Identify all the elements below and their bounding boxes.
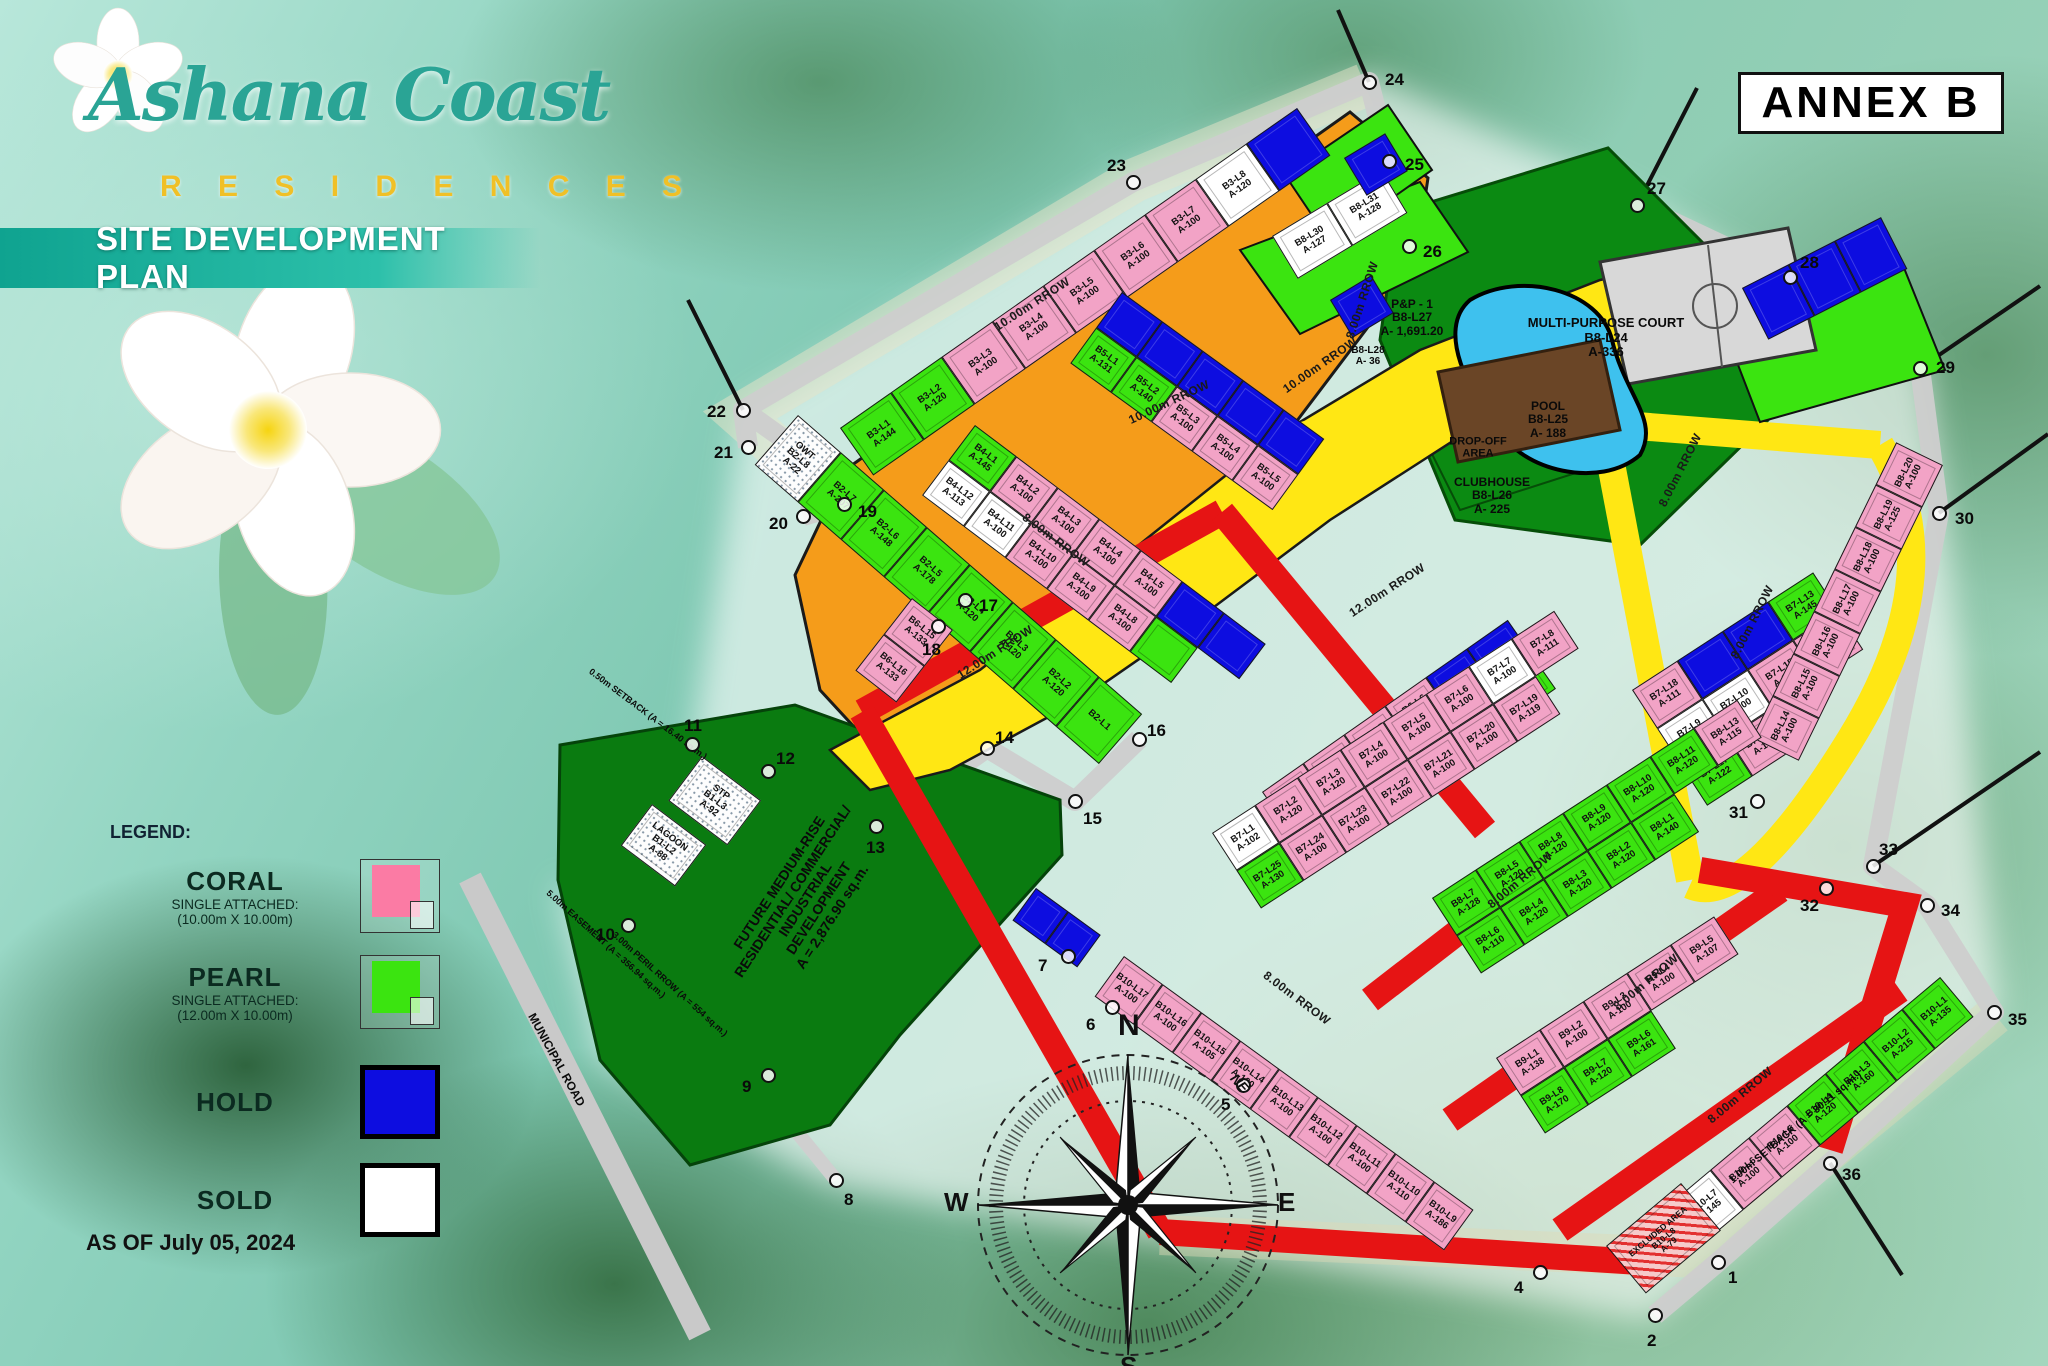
boundary-point-30 bbox=[1932, 506, 1947, 521]
boundary-number-22: 22 bbox=[707, 402, 726, 422]
legend-coral-swatch bbox=[360, 859, 440, 933]
boundary-number-16: 16 bbox=[1147, 721, 1166, 741]
compass-e: E bbox=[1278, 1187, 1295, 1218]
boundary-number-9: 9 bbox=[742, 1077, 751, 1097]
banner-text: SITE DEVELOPMENT PLAN bbox=[96, 220, 540, 296]
legend-item-coral: CORAL SINGLE ATTACHED: (10.00m X 10.00m) bbox=[110, 859, 440, 933]
compass-star bbox=[978, 1055, 1278, 1355]
boundary-point-29 bbox=[1913, 361, 1928, 376]
boundary-number-19: 19 bbox=[858, 502, 877, 522]
legend-coral-desc2: (10.00m X 10.00m) bbox=[110, 912, 360, 927]
boundary-point-33 bbox=[1866, 859, 1881, 874]
legend-sold-name: SOLD bbox=[110, 1185, 360, 1216]
boundary-number-11: 11 bbox=[684, 716, 702, 736]
boundary-point-1 bbox=[1711, 1255, 1726, 1270]
boundary-point-2 bbox=[1648, 1308, 1663, 1323]
area-label: P&P - 1B8-L27A- 1,691.20 bbox=[1381, 298, 1444, 338]
compass-n: N bbox=[1118, 1009, 1140, 1043]
boundary-number-34: 34 bbox=[1941, 901, 1960, 921]
area-label: MULTI-PURPOSE COURTB8-L24A-336 bbox=[1528, 316, 1684, 360]
annex-label: ANNEX B bbox=[1738, 72, 2004, 134]
boundary-point-21 bbox=[741, 440, 756, 455]
boundary-point-22 bbox=[736, 403, 751, 418]
boundary-point-32 bbox=[1819, 881, 1834, 896]
boundary-number-2: 2 bbox=[1647, 1331, 1656, 1351]
boundary-point-16 bbox=[1132, 732, 1147, 747]
legend-pearl-name: PEARL bbox=[110, 962, 360, 993]
boundary-number-6: 6 bbox=[1086, 1015, 1095, 1035]
boundary-point-35 bbox=[1987, 1005, 2002, 1020]
boundary-number-15: 15 bbox=[1083, 809, 1102, 829]
boundary-point-12 bbox=[761, 764, 776, 779]
compass-w: W bbox=[944, 1187, 969, 1218]
boundary-point-7 bbox=[1061, 949, 1076, 964]
boundary-number-4: 4 bbox=[1514, 1278, 1523, 1298]
boundary-point-20 bbox=[796, 509, 811, 524]
boundary-number-33: 33 bbox=[1879, 840, 1898, 860]
legend-coral-desc1: SINGLE ATTACHED: bbox=[110, 897, 360, 912]
boundary-point-28 bbox=[1783, 270, 1798, 285]
boundary-point-8 bbox=[829, 1173, 844, 1188]
legend-hold-swatch bbox=[360, 1065, 440, 1139]
legend-pearl-desc2: (12.00m X 10.00m) bbox=[110, 1008, 360, 1023]
legend: LEGEND: CORAL SINGLE ATTACHED: (10.00m X… bbox=[110, 822, 440, 1259]
boundary-point-27 bbox=[1630, 198, 1645, 213]
area-label: B8-L28A- 36 bbox=[1351, 345, 1384, 367]
boundary-number-12: 12 bbox=[776, 749, 795, 769]
boundary-point-9 bbox=[761, 1068, 776, 1083]
boundary-number-14: 14 bbox=[995, 728, 1014, 748]
area-label: POOLB8-L25A- 188 bbox=[1528, 400, 1568, 440]
legend-sold-swatch bbox=[360, 1163, 440, 1237]
boundary-point-34 bbox=[1920, 898, 1935, 913]
boundary-number-23: 23 bbox=[1107, 156, 1126, 176]
boundary-number-35: 35 bbox=[2008, 1010, 2027, 1030]
boundary-number-17: 17 bbox=[979, 596, 998, 616]
boundary-point-18 bbox=[931, 619, 946, 634]
boundary-number-7: 7 bbox=[1038, 956, 1047, 976]
boundary-number-27: 27 bbox=[1647, 179, 1666, 199]
area-label: DROP-OFFAREA bbox=[1449, 436, 1506, 461]
legend-pearl-desc1: SINGLE ATTACHED: bbox=[110, 993, 360, 1008]
legend-title: LEGEND: bbox=[110, 822, 440, 843]
legend-hold-name: HOLD bbox=[110, 1087, 360, 1118]
logo-title: Ashana Coast bbox=[88, 52, 708, 137]
legend-item-pearl: PEARL SINGLE ATTACHED: (12.00m X 10.00m) bbox=[110, 955, 440, 1029]
boundary-point-24 bbox=[1362, 75, 1377, 90]
area-label: CLUBHOUSEB8-L26A- 225 bbox=[1454, 476, 1530, 516]
compass-s: S bbox=[1120, 1351, 1137, 1366]
boundary-number-36: 36 bbox=[1842, 1165, 1861, 1185]
boundary-point-23 bbox=[1126, 175, 1141, 190]
boundary-point-25 bbox=[1382, 154, 1397, 169]
boundary-number-30: 30 bbox=[1955, 509, 1974, 529]
boundary-point-13 bbox=[869, 819, 884, 834]
boundary-number-10: 10 bbox=[596, 925, 615, 945]
boundary-number-31: 31 bbox=[1729, 803, 1748, 823]
boundary-point-26 bbox=[1402, 239, 1417, 254]
legend-coral-name: CORAL bbox=[110, 866, 360, 897]
compass-rose: N E S W NE bbox=[958, 1035, 1298, 1366]
boundary-number-20: 20 bbox=[769, 514, 788, 534]
boundary-number-26: 26 bbox=[1423, 242, 1442, 262]
boundary-point-10 bbox=[621, 918, 636, 933]
site-development-plan: Ashana Coast R E S I D E N C E S SITE DE… bbox=[0, 0, 2048, 1366]
boundary-number-24: 24 bbox=[1385, 70, 1404, 90]
boundary-point-36 bbox=[1823, 1156, 1838, 1171]
boundary-point-19 bbox=[837, 497, 852, 512]
boundary-number-13: 13 bbox=[866, 838, 885, 858]
boundary-point-14 bbox=[980, 741, 995, 756]
boundary-point-4 bbox=[1533, 1265, 1548, 1280]
boundary-point-17 bbox=[958, 593, 973, 608]
legend-item-hold: HOLD bbox=[110, 1065, 440, 1139]
boundary-number-32: 32 bbox=[1800, 896, 1819, 916]
boundary-number-21: 21 bbox=[714, 443, 733, 463]
boundary-number-29: 29 bbox=[1936, 358, 1955, 378]
legend-item-sold: SOLD bbox=[110, 1163, 440, 1237]
logo-subtitle: R E S I D E N C E S bbox=[160, 170, 696, 204]
boundary-point-11 bbox=[685, 737, 700, 752]
boundary-point-15 bbox=[1068, 794, 1083, 809]
boundary-number-28: 28 bbox=[1800, 253, 1819, 273]
plumeria-flower-large bbox=[7, 210, 585, 788]
legend-pearl-swatch bbox=[360, 955, 440, 1029]
boundary-number-18: 18 bbox=[922, 640, 941, 660]
boundary-number-25: 25 bbox=[1405, 155, 1424, 175]
boundary-number-8: 8 bbox=[844, 1190, 853, 1210]
banner: SITE DEVELOPMENT PLAN bbox=[0, 228, 540, 288]
boundary-number-1: 1 bbox=[1728, 1268, 1737, 1288]
boundary-point-31 bbox=[1750, 794, 1765, 809]
